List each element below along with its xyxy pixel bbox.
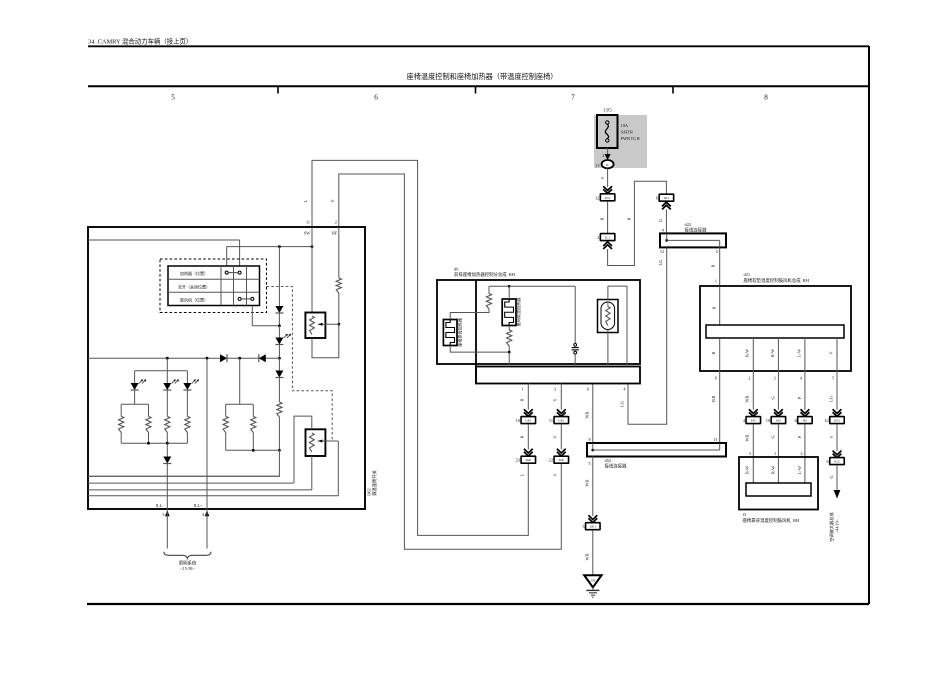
svg-text:1: 1 [715, 278, 717, 283]
svg-text:5: 5 [171, 94, 175, 102]
svg-text:D62: D62 [367, 488, 372, 495]
svg-text:座椅温度控制和座椅加热器（带温度控制座椅）: 座椅温度控制和座椅加热器（带温度控制座椅） [407, 72, 558, 81]
svg-text:1: 1 [774, 451, 776, 456]
svg-text:接线连接器: 接线连接器 [605, 463, 628, 470]
svg-text:WB: WB [584, 411, 589, 418]
svg-text:加热器（位置）: 加热器（位置） [180, 270, 208, 276]
svg-text:d21: d21 [744, 272, 751, 277]
svg-text:座椅软垫温度控制鼓风机总成 RH: 座椅软垫温度控制鼓风机总成 RH [744, 277, 810, 284]
svg-text:11: 11 [549, 418, 553, 423]
svg-text:接线连接器: 接线连接器 [685, 226, 708, 233]
svg-text:G: G [770, 396, 775, 399]
svg-text:7: 7 [571, 94, 575, 102]
svg-text:L: L [520, 473, 525, 476]
svg-text:WB: WB [745, 434, 750, 441]
svg-text:2: 2 [335, 220, 337, 225]
svg-text:2: 2 [597, 235, 599, 240]
svg-text:10A: 10A [621, 123, 629, 128]
svg-text:5: 5 [589, 461, 591, 466]
svg-text:5: 5 [716, 249, 718, 254]
svg-text:R-W: R-W [770, 348, 775, 357]
svg-text:L-W: L-W [796, 348, 801, 357]
svg-text:6: 6 [715, 375, 717, 380]
svg-text:12: 12 [660, 249, 664, 254]
svg-text:R: R [711, 264, 716, 267]
svg-text:Y: Y [553, 398, 558, 401]
svg-text:IC1: IC1 [605, 236, 610, 240]
svg-text:5: 5 [832, 375, 834, 380]
svg-text:34 CAMRY 混合动力车辆（接上页）: 34 CAMRY 混合动力车辆（接上页） [88, 37, 192, 46]
svg-text:R-W: R-W [770, 465, 775, 474]
svg-text:GE1: GE1 [525, 419, 532, 423]
svg-text:WB: WB [711, 395, 716, 402]
svg-text:11: 11 [713, 437, 717, 442]
svg-text:ILL+: ILL+ [194, 503, 203, 508]
svg-text:B-W: B-W [745, 465, 750, 474]
svg-text:8: 8 [589, 437, 591, 442]
svg-text:IG2: IG2 [834, 460, 840, 464]
svg-text:G: G [770, 435, 775, 438]
svg-text:BF: BF [332, 230, 338, 235]
svg-text:SW: SW [304, 230, 310, 235]
svg-text:LG: LG [828, 396, 833, 402]
svg-text:3: 3 [774, 375, 776, 380]
svg-text:3: 3 [749, 451, 751, 456]
svg-text:OI1: OI1 [664, 196, 670, 200]
svg-text:LG: LG [620, 401, 625, 407]
svg-text:座椅软垫加热器: 座椅软垫加热器 [515, 298, 521, 327]
svg-text:R: R [520, 398, 525, 401]
svg-text:R: R [626, 217, 631, 220]
svg-text:L-W: L-W [797, 465, 802, 474]
svg-text:2: 2 [748, 375, 750, 380]
svg-text:f42: f42 [803, 419, 808, 423]
svg-text:f42: f42 [751, 419, 756, 423]
svg-text:f42: f42 [776, 419, 781, 423]
svg-text:WB: WB [745, 395, 750, 402]
svg-text:前排座椅加热器控制分总成 RH: 前排座椅加热器控制分总成 RH [454, 271, 516, 278]
svg-text:11: 11 [306, 220, 310, 225]
svg-text:S/HTR: S/HTR [621, 130, 634, 135]
svg-text:WB: WB [584, 479, 589, 486]
svg-text:12: 12 [595, 195, 599, 200]
svg-text:R: R [520, 435, 525, 438]
svg-text:GE1: GE1 [834, 419, 841, 423]
svg-text:IN1: IN1 [605, 196, 611, 200]
svg-text:调温座椅开关: 调温座椅开关 [371, 469, 378, 495]
svg-text:WB: WB [584, 553, 589, 560]
svg-text:<44-16>: <44-16> [834, 518, 839, 533]
svg-text:3: 3 [554, 387, 556, 392]
svg-text:ILL-: ILL- [156, 503, 164, 508]
svg-text:B-W: B-W [745, 348, 750, 357]
svg-text:<15-39>: <15-39> [180, 566, 195, 571]
svg-text:13: 13 [595, 163, 599, 168]
svg-text:LG: LG [658, 260, 663, 266]
svg-text:22: 22 [549, 458, 553, 463]
svg-text:G: G [829, 475, 834, 478]
svg-text:1: 1 [521, 387, 523, 392]
svg-text:12: 12 [824, 418, 828, 423]
svg-text:GE1: GE1 [590, 525, 597, 529]
svg-text:L: L [303, 199, 308, 202]
svg-text:2: 2 [801, 451, 803, 456]
svg-text:3: 3 [162, 512, 164, 517]
svg-text:d52: d52 [605, 458, 612, 463]
svg-text:8: 8 [764, 94, 768, 102]
svg-text:GB: GB [591, 579, 595, 583]
svg-text:GE1: GE1 [558, 419, 565, 423]
svg-text:B: B [711, 351, 716, 354]
svg-text:全开（关闭位置）: 全开（关闭位置） [178, 283, 210, 289]
svg-text:R: R [711, 306, 716, 309]
svg-text:6: 6 [374, 94, 378, 102]
svg-text:R: R [600, 217, 605, 220]
svg-text:6: 6 [587, 387, 589, 392]
svg-text:IGE: IGE [525, 458, 531, 462]
svg-text:IGE: IGE [558, 458, 564, 462]
svg-text:d22: d22 [685, 222, 692, 227]
svg-text:2: 2 [602, 153, 604, 158]
svg-text:鼓风机（位置）: 鼓风机（位置） [180, 296, 208, 302]
svg-text:座椅靠背加热器: 座椅靠背加热器 [457, 318, 463, 347]
svg-text:PWR IG R: PWR IG R [621, 136, 640, 141]
svg-text:(1G: (1G [604, 109, 612, 114]
svg-text:座椅靠背温度控制鼓风机 RH: 座椅靠背温度控制鼓风机 RH [743, 517, 800, 524]
svg-text:G: G [658, 219, 663, 222]
